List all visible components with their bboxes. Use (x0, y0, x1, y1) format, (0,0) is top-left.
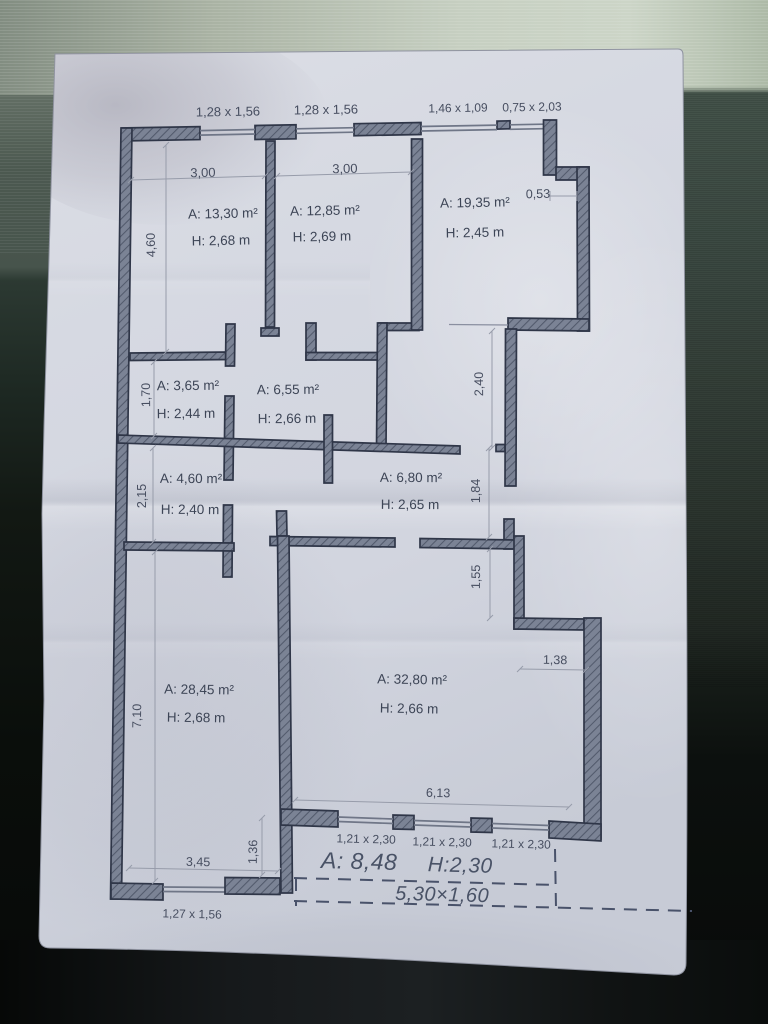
svg-text:H: 2,44 m: H: 2,44 m (157, 406, 216, 422)
svg-text:2,40: 2,40 (472, 372, 486, 396)
svg-text:1,28 x 1,56: 1,28 x 1,56 (294, 101, 359, 117)
svg-text:1,21 x 2,30: 1,21 x 2,30 (412, 834, 472, 849)
svg-text:A: 19,35 m²: A: 19,35 m² (440, 194, 511, 210)
svg-text:A: 6,80 m²: A: 6,80 m² (380, 470, 443, 485)
svg-text:H: 2,66 m: H: 2,66 m (380, 700, 439, 716)
svg-text:H: 2,66 m: H: 2,66 m (258, 411, 317, 427)
svg-text:A: 4,60 m²: A: 4,60 m² (160, 471, 223, 486)
svg-text:H: 2,45 m: H: 2,45 m (446, 224, 505, 240)
svg-text:1,28 x 1,56: 1,28 x 1,56 (196, 103, 261, 119)
svg-text:3,00: 3,00 (190, 165, 216, 180)
svg-text:3,00: 3,00 (332, 161, 358, 176)
svg-text:1,38: 1,38 (543, 653, 568, 667)
svg-text:1,21 x 2,30: 1,21 x 2,30 (336, 831, 396, 846)
svg-text:1,55: 1,55 (469, 565, 483, 589)
svg-text:3,45: 3,45 (186, 855, 211, 869)
svg-text:A: 28,45 m²: A: 28,45 m² (164, 682, 234, 698)
svg-text:H: 2,68 m: H: 2,68 m (167, 710, 226, 726)
svg-text:7,10: 7,10 (130, 704, 144, 729)
svg-text:0,75 x 2,03: 0,75 x 2,03 (502, 99, 562, 114)
svg-text:A: 6,55 m²: A: 6,55 m² (257, 382, 320, 398)
svg-text:A: 3,65 m²: A: 3,65 m² (157, 378, 220, 394)
svg-text:H: 2,69 m: H: 2,69 m (293, 228, 352, 244)
svg-text:1,70: 1,70 (139, 383, 153, 407)
svg-text:0,53: 0,53 (526, 187, 551, 201)
svg-text:H: 2,68 m: H: 2,68 m (192, 232, 251, 248)
svg-text:A: 13,30 m²: A: 13,30 m² (188, 205, 259, 221)
svg-text:1,46 x 1,09: 1,46 x 1,09 (428, 100, 488, 115)
svg-text:A: 32,80 m²: A: 32,80 m² (377, 671, 448, 687)
svg-text:4,60: 4,60 (144, 233, 158, 258)
svg-text:1,21 x 2,30: 1,21 x 2,30 (491, 836, 551, 851)
svg-text:1,36: 1,36 (246, 840, 260, 865)
svg-text:A: 8,48: A: 8,48 (319, 847, 398, 875)
svg-text:A: 12,85 m²: A: 12,85 m² (290, 202, 361, 218)
svg-text:H: 2,40 m: H: 2,40 m (161, 502, 220, 517)
svg-text:6,13: 6,13 (426, 786, 451, 801)
svg-text:H: 2,65 m: H: 2,65 m (381, 497, 440, 512)
svg-text:1,84: 1,84 (469, 479, 483, 503)
svg-text:2,15: 2,15 (135, 484, 149, 508)
svg-text:H:2,30: H:2,30 (427, 853, 492, 878)
svg-text:1,27 x 1,56: 1,27 x 1,56 (162, 906, 222, 921)
